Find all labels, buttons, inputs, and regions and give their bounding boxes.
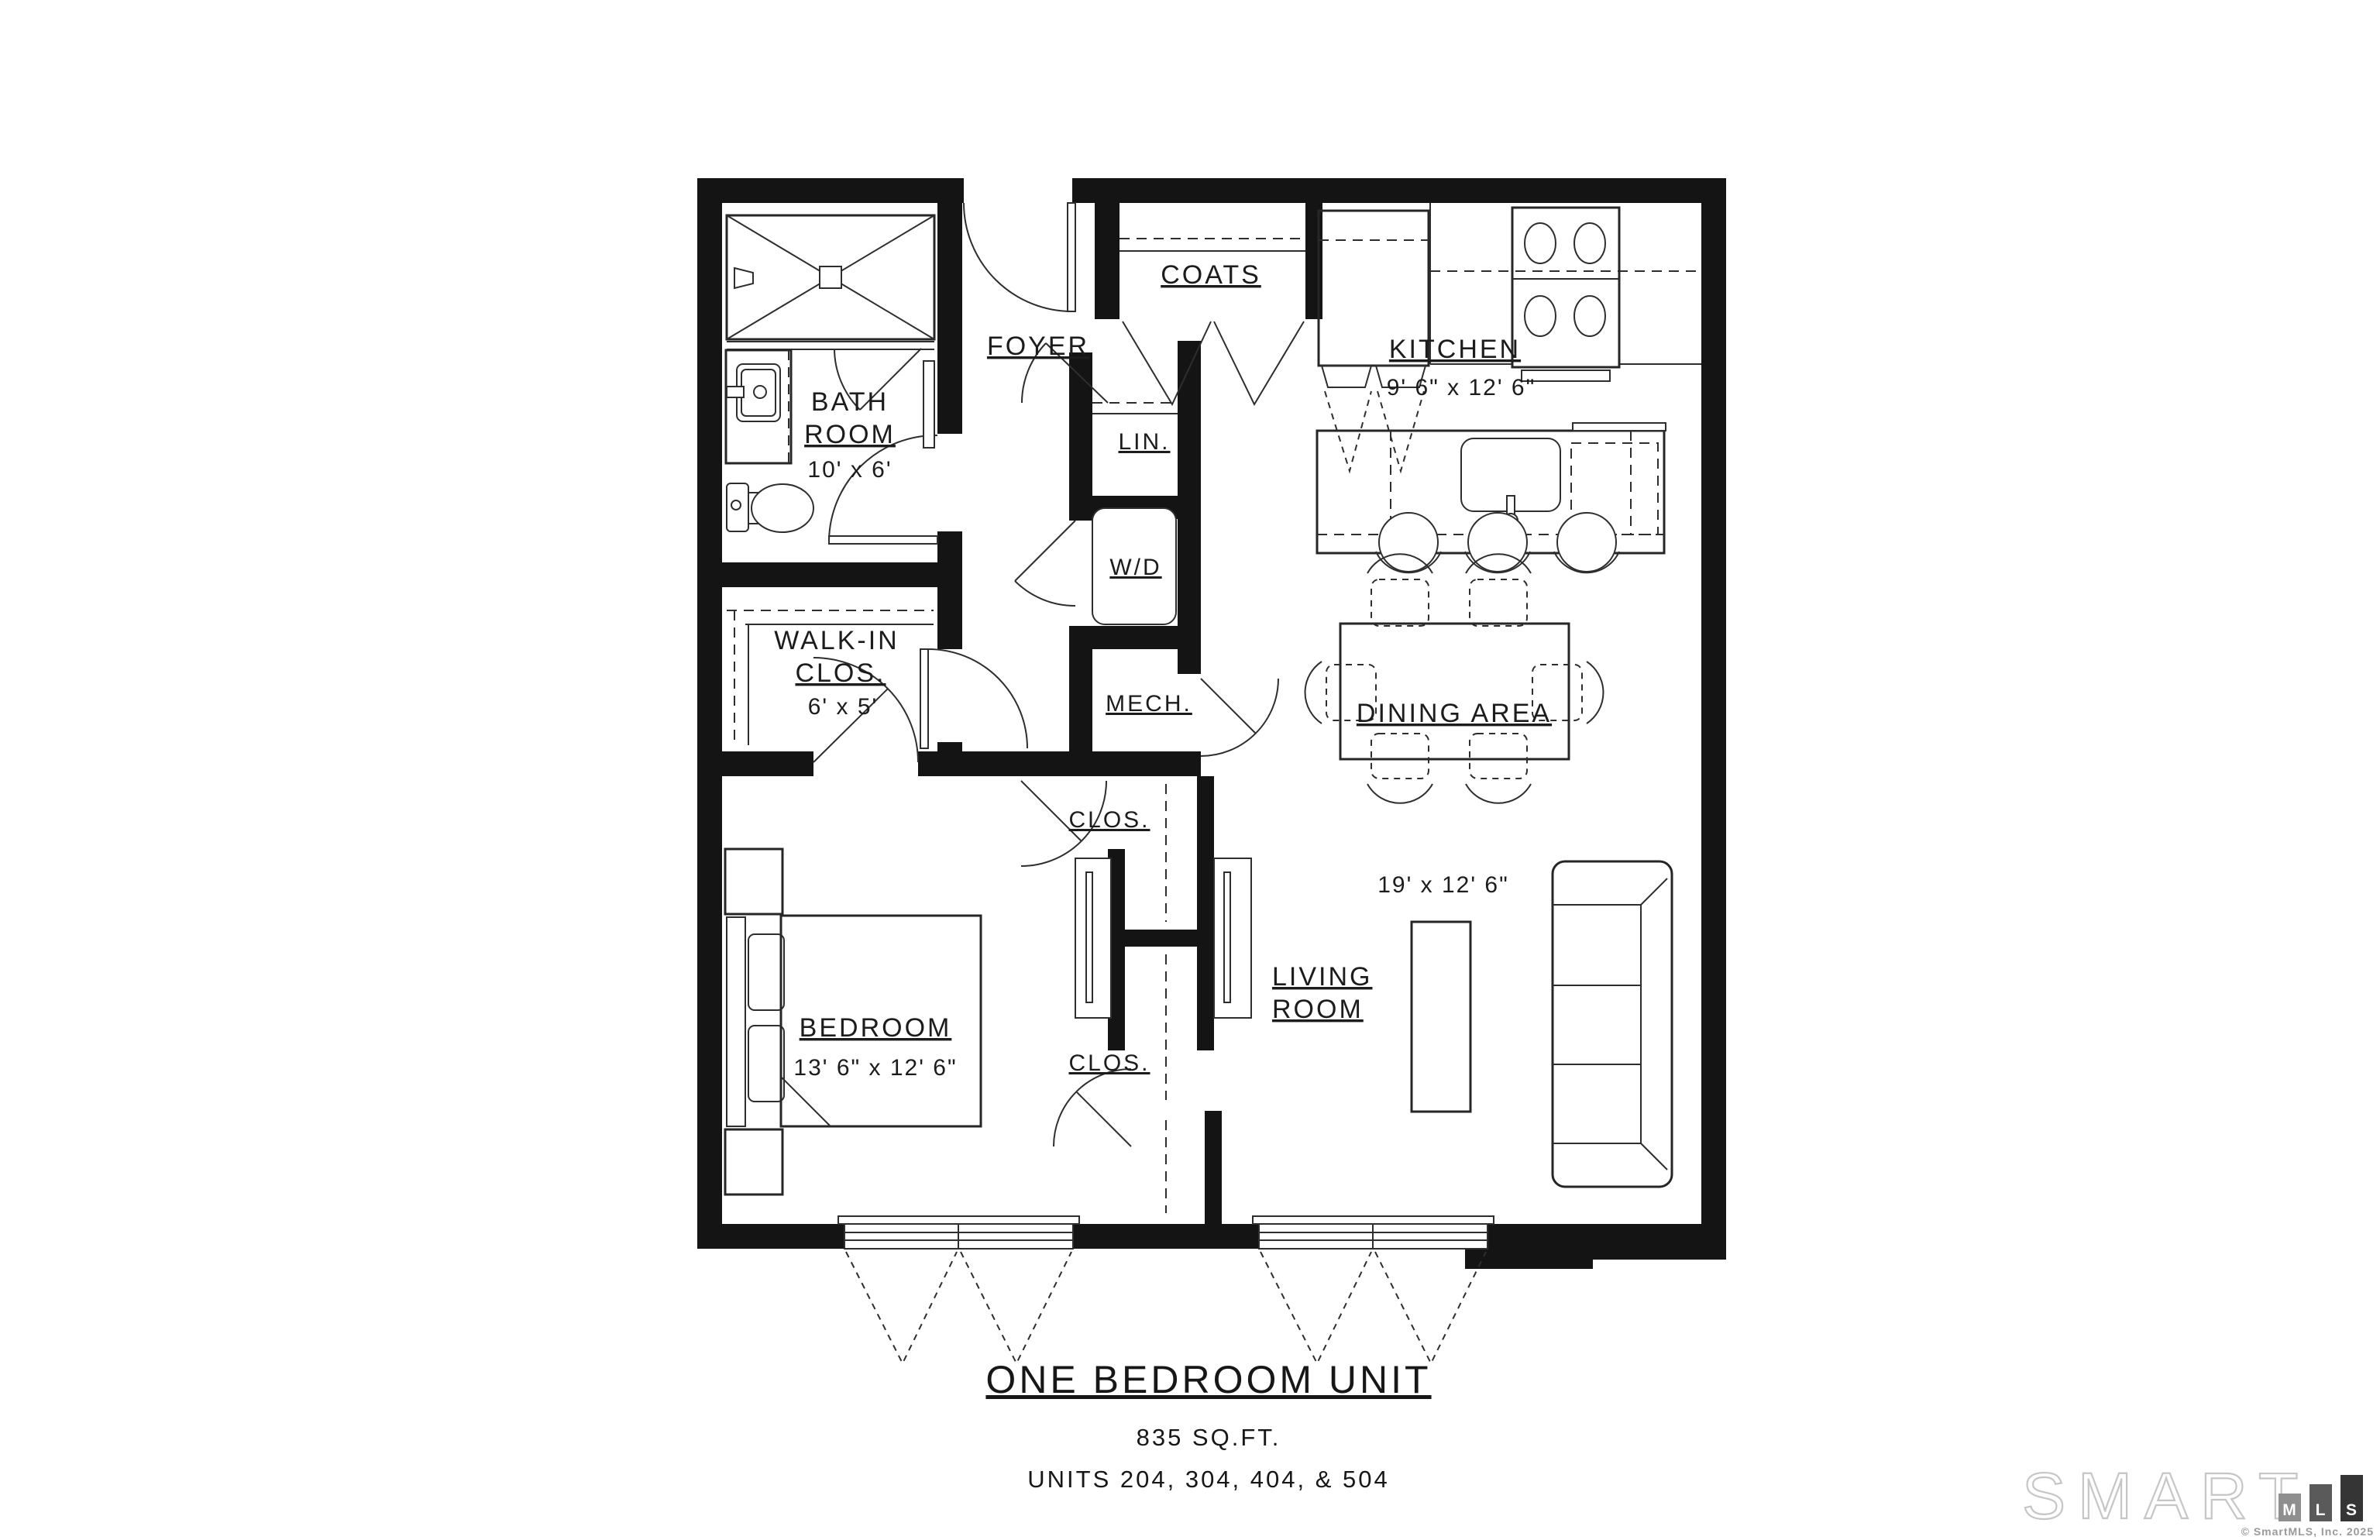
chair-back-left [1305,662,1322,724]
label-closet-lower: CLOS. [1068,1050,1150,1076]
watermark-copyright: © SmartMLS, Inc. 2025 [2241,1525,2374,1538]
label-bedroom: BEDROOM [800,1013,952,1043]
island-bar-ledge [1573,423,1666,431]
bath-door-leaf [829,536,937,544]
bath-mirror-cabinet [923,361,934,448]
burner-1 [1525,223,1556,263]
label-walkin-1: WALK-IN [774,626,899,655]
label-living-2: ROOM [1272,995,1364,1024]
bed-fold [781,1077,831,1126]
bedroom-door-leaf [920,649,928,748]
floorplan-canvas: FOYER COATS KITCHEN 9' 6" x 12' 6" BATH … [0,0,2380,1540]
bedroom-door-arc [928,649,1027,748]
dining-table [1340,624,1569,759]
wall-east [1701,178,1726,1249]
stool-1 [1379,513,1438,572]
coats-bifold-right [1214,321,1304,404]
wall-living-west [1205,1111,1222,1224]
dims-living: 19' x 12' 6" [1377,872,1509,898]
plan-sqft: 835 SQ.FT. [1137,1424,1281,1451]
wall-coats-west [1095,203,1119,319]
entry-door-arc [964,203,1072,311]
bedroom-tv-screen [1086,872,1092,1002]
wall-bath-walkin [697,562,962,587]
bedroom-window [838,1216,1079,1363]
label-bath-1: BATH [811,387,889,417]
sofa-corner-top [1641,878,1667,905]
coffee-table [1412,922,1470,1112]
dining-furniture [1305,554,1604,803]
wall-strip-east [1178,341,1201,674]
wall-bath-east [937,203,962,434]
wall-bottom-1 [697,1224,844,1249]
chair-back-bottom-2 [1466,784,1531,803]
bedroom-window-swing-left [846,1252,957,1363]
living-window [1253,1216,1494,1363]
plan-title: ONE BEDROOM UNIT [985,1358,1431,1401]
label-walkin-2: CLOS. [795,658,886,688]
mls-l-letter: L [2316,1501,2326,1519]
wall-bedroom-north-1 [697,751,813,776]
wall-west [697,178,722,1249]
mls-s-letter: S [2346,1501,2357,1519]
label-closet-upper: CLOS. [1068,807,1150,833]
vanity-faucet [727,387,744,397]
shower-drain [820,266,841,288]
wd-door-leaf [1015,521,1075,581]
dims-walkin: 6' x 5' [808,694,879,720]
wall-coats-east [1305,203,1322,319]
chair-back-right [1587,662,1603,724]
chair-bottom-1 [1371,734,1429,779]
dims-bath: 10' x 6' [807,457,892,483]
wall-bottom-step-2 [1593,1249,1726,1260]
label-foyer: FOYER [987,332,1089,361]
pillow-1 [748,934,784,1010]
chair-top-2 [1470,579,1527,626]
wall-bottom-2 [1073,1224,1259,1249]
label-wd: W/D [1109,555,1161,580]
wall-bottom-3 [1487,1224,1726,1249]
stool-2 [1468,513,1527,572]
mech-door-leaf [1201,679,1256,734]
dims-bedroom: 13' 6" x 12' 6" [793,1055,957,1081]
living-tv-screen [1224,872,1230,1002]
bath-door-arc [829,435,937,541]
nightstand-2 [725,1129,782,1195]
wall-walkin-east [937,587,962,649]
burner-3 [1525,296,1556,336]
label-mech: MECH. [1106,691,1192,717]
stool-3 [1557,513,1616,572]
label-kitchen: KITCHEN [1389,335,1521,364]
vanity-drain [754,386,766,398]
label-coats: COATS [1161,260,1261,290]
room-labels: FOYER COATS KITCHEN 9' 6" x 12' 6" BATH … [774,260,1552,1081]
sofa-outline [1553,861,1672,1187]
wall-bedroom-north-2 [918,751,1201,776]
living-furniture [1412,861,1672,1187]
toilet-flush [731,500,741,510]
plan-units: UNITS 204, 304, 404, & 504 [1027,1466,1389,1493]
pillow-2 [748,1026,784,1102]
headboard [727,917,745,1126]
floorplan-page: FOYER COATS KITCHEN 9' 6" x 12' 6" BATH … [0,0,2380,1540]
shower-head-icon [734,268,753,288]
toilet-bowl [751,484,813,532]
chair-bottom-2 [1470,734,1527,779]
label-linen: LIN. [1118,429,1170,455]
closet-lower-door-leaf [1077,1092,1131,1146]
burner-2 [1574,223,1605,263]
living-window-swing-left [1261,1252,1371,1363]
bedroom-window-swing-right [961,1252,1071,1363]
dims-kitchen: 9' 6" x 12' 6" [1387,375,1536,400]
sofa-corner-bottom [1641,1143,1667,1170]
fridge-door-left [1322,366,1371,387]
chair-back-bottom-1 [1367,784,1432,803]
label-dining: DINING AREA [1357,699,1552,728]
nightstand-1 [725,849,782,914]
burner-4 [1574,296,1605,336]
mls-m-letter: M [2282,1501,2296,1519]
bathroom-fixtures [726,215,934,532]
wall-top-right [1072,178,1726,203]
chair-top-1 [1371,579,1429,626]
living-tv-panel [1214,858,1251,1018]
title-block: ONE BEDROOM UNIT 835 SQ.FT. UNITS 204, 3… [985,1358,1431,1493]
wall-bottom-step-1 [1465,1249,1593,1269]
label-bath-2: ROOM [804,420,896,449]
watermark: SMART M L S © SmartMLS, Inc. 2025 [2022,1459,2374,1538]
label-living-1: LIVING [1272,962,1372,992]
entry-door-leaf [1068,203,1075,311]
wall-closet-mid-east [1197,776,1214,1050]
wall-closet-crossbar [1108,930,1214,947]
wall-bath-east-jamb [937,531,962,565]
watermark-brand: SMART [2022,1459,2310,1532]
wd-door-arc [1015,581,1075,606]
wall-top-left [697,178,964,203]
